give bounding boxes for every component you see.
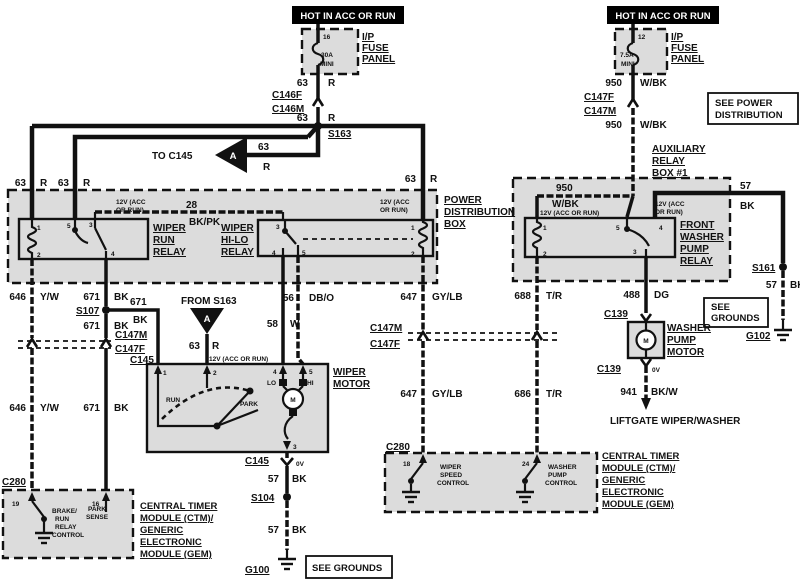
- v12-left-l2: OR RUN): [116, 207, 144, 214]
- wiper-motor-l1: WIPER: [333, 367, 367, 378]
- splice-s163-label: S163: [328, 129, 352, 140]
- washer-motor-m: M: [643, 338, 648, 345]
- connector-c139-bottom: C139: [597, 364, 621, 375]
- connector-c147m-right: C147M: [584, 106, 616, 117]
- wire-label-488-c: DG: [654, 290, 669, 301]
- fuse-panel-left-l2: FUSE: [362, 43, 389, 54]
- c139-zero-v: 0V: [652, 367, 661, 374]
- connector-c147m-left: C147M: [115, 330, 147, 341]
- motor-pin2: 2: [213, 370, 217, 377]
- wire-label-646-2n: 646: [9, 403, 26, 414]
- v12-right-l1: 12V (ACC: [380, 199, 410, 206]
- wire-label-647-2n: 647: [400, 389, 417, 400]
- hilo-pin5: 5: [302, 250, 306, 257]
- ctm-right-l2: MODULE (CTM)/: [602, 463, 676, 474]
- wire-label-57r2-c: BK: [790, 280, 800, 291]
- wire-label-63-br-c: R: [263, 162, 271, 173]
- ctm-right-l3: GENERIC: [602, 475, 645, 486]
- run-relay-l2: RUN: [153, 235, 175, 246]
- wiper-speed-l1: WIPER: [440, 464, 462, 471]
- wire-label-671-2n: 671: [83, 321, 100, 332]
- v12-motor: 12V (ACC OR RUN): [209, 356, 268, 363]
- fuse-left-pin: 16: [323, 34, 331, 41]
- module-pin24: 24: [522, 461, 530, 468]
- see-grounds-bottom-text: SEE GROUNDS: [312, 563, 382, 574]
- connector-symbol-c139-bottom: [641, 359, 651, 366]
- module-pin19: 19: [12, 501, 20, 508]
- wire-label-63-d1n: 63: [15, 178, 27, 189]
- ctm-right-l4: ELECTRONIC: [602, 487, 664, 498]
- hilo-relay-l1: WIPER: [221, 223, 255, 234]
- v12-right-l2: OR RUN): [380, 207, 408, 214]
- v12-aux-right-l2: OR RUN): [655, 209, 683, 216]
- wiper-motor-box: [147, 364, 328, 452]
- wire-label-950-1c: W/BK: [640, 78, 667, 89]
- wire-label-647-1c: GY/LB: [432, 292, 463, 303]
- v12-aux-left: 12V (ACC OR RUN): [540, 210, 599, 217]
- washer-relay-l2: WASHER: [680, 232, 725, 243]
- arrow-a-left-text: A: [230, 151, 237, 162]
- diagram-canvas: HOT IN ACC OR RUN HOT IN ACC OR RUN 16 3…: [0, 0, 800, 582]
- motor-pin4: 4: [273, 369, 277, 376]
- wire-label-63-d1c: R: [40, 178, 48, 189]
- wire-label-671-brc: BK: [133, 315, 148, 326]
- arrow-down-liftgate: [641, 398, 651, 410]
- connector-c147m-mid: C147M: [370, 323, 402, 334]
- ctm-left-l2: MODULE (CTM)/: [140, 513, 214, 524]
- ground-symbol-g102: [774, 330, 792, 340]
- wire-label-57r-n: 57: [740, 181, 752, 192]
- splice-s104-label: S104: [251, 493, 275, 504]
- washer-motor-l2: PUMP: [667, 335, 696, 346]
- v12-left-l1: 12V (ACC: [116, 199, 146, 206]
- wire-label-56-n: 56: [283, 293, 295, 304]
- ctm-left-l4: ELECTRONIC: [140, 537, 202, 548]
- hilo-pin1: 1: [411, 225, 415, 232]
- wire-label-56-c: DB/O: [309, 293, 334, 304]
- splice-dot-s161: [779, 263, 787, 271]
- wiring-diagram: HOT IN ACC OR RUN HOT IN ACC OR RUN 16 3…: [0, 0, 800, 582]
- wire-label-58-n: 58: [267, 319, 279, 330]
- wire-label-950-in-c: W/BK: [552, 199, 579, 210]
- aux-box-l2: RELAY: [652, 156, 685, 167]
- wire-label-63-trn: 63: [189, 341, 201, 352]
- wire-label-63-trc: R: [212, 341, 220, 352]
- motor-park-label: PARK: [240, 401, 258, 408]
- brc-l1: BRAKE/: [52, 508, 77, 515]
- ctm-left-l3: GENERIC: [140, 525, 183, 536]
- wire-label-488-n: 488: [623, 290, 640, 301]
- brc-l2: RUN: [55, 516, 69, 523]
- wire-label-671-1c: BK: [114, 292, 129, 303]
- wire-label-646-1n: 646: [9, 292, 26, 303]
- wire-label-941-c: BK/W: [651, 387, 678, 398]
- fuse-panel-left-l1: I/P: [362, 32, 375, 43]
- run-pin2: 2: [37, 252, 41, 259]
- washer-pin3: 3: [633, 249, 637, 256]
- washer-pump-l1: WASHER: [548, 464, 577, 471]
- hot-banner-left-text: HOT IN ACC OR RUN: [300, 11, 395, 22]
- aux-box-l1: AUXILIARY: [652, 144, 706, 155]
- wire-label-63-d2c: R: [83, 178, 91, 189]
- fuse-panel-right-l3: PANEL: [671, 54, 704, 65]
- ctm-left-l5: MODULE (GEM): [140, 549, 212, 560]
- motor-lower-terminal: [289, 409, 297, 416]
- run-relay-l3: RELAY: [153, 247, 186, 258]
- connector-c146f-label: C146F: [272, 90, 302, 101]
- wire-label-688-n: 688: [514, 291, 531, 302]
- connector-c147f-left: C147F: [115, 344, 145, 355]
- washer-relay-l3: PUMP: [680, 244, 709, 255]
- wire-label-63-d3c: R: [430, 174, 438, 185]
- v12-aux-right-l1: 12V (ACC: [655, 201, 685, 208]
- aux-box-l3: BOX #1: [652, 168, 688, 179]
- motor-pin5: 5: [309, 369, 313, 376]
- wiper-speed-l2: SPEED: [440, 472, 462, 479]
- washer-motor-l3: MOTOR: [667, 347, 705, 358]
- wire-label-57m2-c: BK: [292, 525, 307, 536]
- connector-symbol-c145-bottom: [281, 458, 293, 465]
- power-dist-l2: DISTRIBUTION: [444, 207, 515, 218]
- ground-g102-label: G102: [746, 331, 771, 342]
- washer-relay-body: [525, 218, 675, 257]
- motor-run-label: RUN: [166, 397, 180, 404]
- wire-label-63-1c: R: [328, 78, 336, 89]
- wire-label-63-1n: 63: [297, 78, 309, 89]
- wire-label-646-1c: Y/W: [40, 292, 59, 303]
- wire-label-950-in-n: 950: [556, 183, 573, 194]
- see-power-l2: DISTRIBUTION: [715, 110, 783, 121]
- connector-symbol-c146: [313, 98, 323, 106]
- motor-lo-terminal: [279, 379, 287, 386]
- see-grounds-right-l2: GROUNDS: [711, 313, 760, 324]
- ground-symbol-g100: [278, 559, 296, 569]
- wire-label-63-2c: R: [328, 113, 336, 124]
- wire-label-28-c: BK/PK: [189, 217, 221, 228]
- washer-motor-l1: WASHER: [667, 323, 712, 334]
- wire-label-686-c: T/R: [546, 389, 563, 400]
- wire-label-647-2c: GY/LB: [432, 389, 463, 400]
- see-grounds-right-l1: SEE: [711, 302, 730, 313]
- motor-lo-label: LO: [267, 380, 276, 387]
- run-pin3: 3: [89, 222, 93, 229]
- splice-dot-s107: [102, 306, 110, 314]
- wire-label-63-d2n: 63: [58, 178, 70, 189]
- motor-pin3: 3: [293, 444, 297, 451]
- arrow-a-mid-text: A: [204, 314, 211, 325]
- hilo-pin4: 4: [272, 250, 276, 257]
- run-relay-l1: WIPER: [153, 223, 187, 234]
- wire-label-671-1n: 671: [83, 292, 100, 303]
- park-sense-l2: SENSE: [86, 514, 109, 521]
- connector-c147f-mid: C147F: [370, 339, 400, 350]
- splice-dot-s104: [283, 493, 291, 501]
- brc-l4: CONTROL: [52, 532, 84, 539]
- wire-label-686-n: 686: [514, 389, 531, 400]
- c145-zero-v: 0V: [296, 461, 305, 468]
- fuse-panel-right-l2: FUSE: [671, 43, 698, 54]
- wire-label-950-2n: 950: [605, 120, 622, 131]
- motor-pin1: 1: [163, 370, 167, 377]
- splice-dot-s163: [314, 122, 322, 130]
- wire-label-63-d3n: 63: [405, 174, 417, 185]
- ctm-right-l5: MODULE (GEM): [602, 499, 674, 510]
- see-power-l1: SEE POWER: [715, 98, 773, 109]
- liftgate-label: LIFTGATE WIPER/WASHER: [610, 416, 741, 427]
- to-c145-label: TO C145: [152, 151, 193, 162]
- wire-label-688-c: T/R: [546, 291, 563, 302]
- wire-label-28-n: 28: [186, 200, 198, 211]
- hot-banner-right-text: HOT IN ACC OR RUN: [615, 11, 710, 22]
- park-sense-l1: PARK: [88, 506, 106, 513]
- washer-pump-l3: CONTROL: [545, 480, 577, 487]
- motor-hi-terminal: [299, 379, 307, 386]
- wire-label-57m2-n: 57: [268, 525, 280, 536]
- wire-label-671-3n: 671: [83, 403, 100, 414]
- wire-label-57r2-n: 57: [766, 280, 778, 291]
- wire-label-63-br-n: 63: [258, 142, 270, 153]
- washer-relay-l4: RELAY: [680, 256, 713, 267]
- splice-s107-label: S107: [76, 306, 100, 317]
- washer-pump-switch-dot: [522, 478, 528, 484]
- wire-label-58-c: W: [290, 319, 300, 330]
- run-pin1: 1: [37, 225, 41, 232]
- wire-label-57m1-n: 57: [268, 474, 280, 485]
- washer-pin5: 5: [616, 225, 620, 232]
- motor-hi-label: HI: [307, 380, 314, 387]
- washer-pump-l2: PUMP: [548, 472, 567, 479]
- wiper-speed-l3: CONTROL: [437, 480, 469, 487]
- connector-symbol-c139-top: [641, 314, 651, 321]
- fuse-left-rating: 30A: [321, 52, 333, 59]
- connector-symbol-686: [532, 332, 542, 340]
- ctm-right-l1: CENTRAL TIMER: [602, 451, 680, 462]
- hilo-relay-l2: HI-LO: [221, 235, 248, 246]
- hilo-pin3: 3: [276, 224, 280, 231]
- wire-label-63-2n: 63: [297, 113, 309, 124]
- hilo-pin2: 2: [411, 251, 415, 258]
- fuse-panel-left-l3: PANEL: [362, 54, 395, 65]
- wire-label-57m1-c: BK: [292, 474, 307, 485]
- splice-s161-label: S161: [752, 263, 776, 274]
- fuse-right-pin: 12: [638, 34, 646, 41]
- wire-label-57r-c: BK: [740, 201, 755, 212]
- brc-l3: RELAY: [55, 524, 77, 531]
- run-pin5: 5: [67, 223, 71, 230]
- washer-pin4: 4: [659, 225, 663, 232]
- power-dist-l1: POWER: [444, 195, 483, 206]
- wire-label-950-1n: 950: [605, 78, 622, 89]
- power-dist-l3: BOX: [444, 219, 466, 230]
- connector-c280-left: C280: [2, 477, 26, 488]
- connector-symbol-c147-right: [628, 99, 638, 107]
- ground-g100-label: G100: [245, 565, 270, 576]
- connector-c147f-right: C147F: [584, 92, 614, 103]
- wiper-speed-switch-dot: [408, 478, 414, 484]
- wiper-motor-l2: MOTOR: [333, 379, 371, 390]
- ctm-left-l1: CENTRAL TIMER: [140, 501, 218, 512]
- from-s163-label: FROM S163: [181, 296, 237, 307]
- wire-63r-hook: [308, 128, 316, 137]
- fuse-panel-right-l1: I/P: [671, 32, 684, 43]
- washer-relay-l1: FRONT: [680, 220, 714, 231]
- hilo-relay-l3: RELAY: [221, 247, 254, 258]
- fuse-left-size: MINI: [320, 61, 334, 68]
- wire-label-941-n: 941: [620, 387, 637, 398]
- washer-pin2: 2: [543, 251, 547, 258]
- connector-c145-bottom: C145: [245, 456, 269, 467]
- connector-c145-top: C145: [130, 355, 154, 366]
- wire-label-671-brn: 671: [130, 297, 147, 308]
- connector-c139-top: C139: [604, 309, 628, 320]
- wire-label-646-2c: Y/W: [40, 403, 59, 414]
- washer-pin1: 1: [543, 225, 547, 232]
- connector-c280-right: C280: [386, 442, 410, 453]
- module-pin18: 18: [403, 461, 411, 468]
- wire-label-950-2c: W/BK: [640, 120, 667, 131]
- wire-label-647-1n: 647: [400, 292, 417, 303]
- fuse-right-rating: 7.5A: [620, 52, 634, 59]
- wire-label-671-3c: BK: [114, 403, 129, 414]
- run-pin4: 4: [111, 251, 115, 258]
- fuse-right-size: MINI: [621, 61, 635, 68]
- motor-m-label: M: [290, 397, 295, 404]
